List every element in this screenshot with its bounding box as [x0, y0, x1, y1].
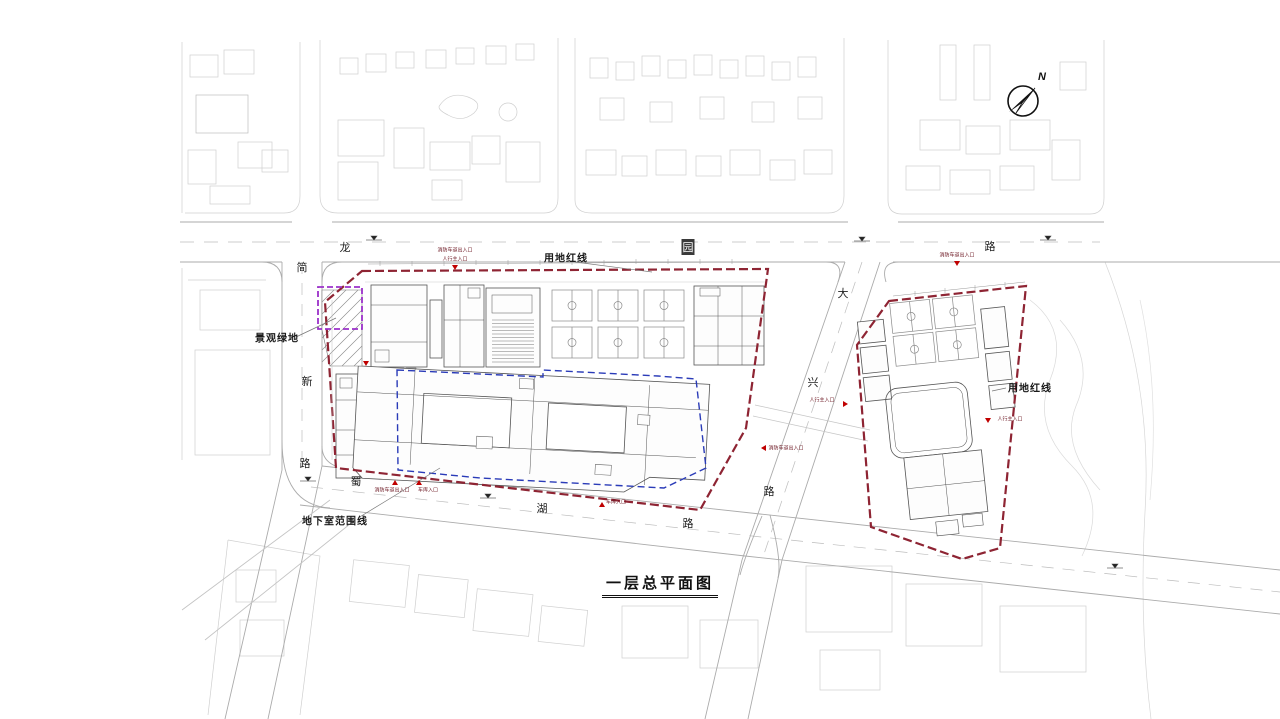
page-title: 一层总平面图 [602, 572, 718, 598]
label-garage-south2: 车库入口 [418, 487, 438, 494]
label-site-red-line-left: 用地红线 [544, 250, 588, 265]
label-site-red-line-right: 用地红线 [1008, 380, 1052, 395]
road-south-char-1: 蜀 [351, 473, 362, 489]
road-south-char-2: 湖 [537, 500, 548, 516]
road-west-char-2: 新 [302, 373, 313, 389]
label-fire-access-east: 消防车道出入口 [768, 445, 803, 452]
road-west-char-3: 路 [300, 455, 311, 471]
landscape-green-hatch [322, 290, 362, 366]
north-compass-icon [1008, 86, 1038, 116]
left-parcel-buildings [336, 282, 765, 496]
label-fire-access-top: 消防车道出入口 [437, 247, 472, 254]
site-plan-drawing [0, 0, 1280, 719]
north-label: N [1038, 71, 1046, 83]
label-basement-extent: 地下室范围线 [302, 513, 368, 528]
road-top-char-3: 路 [985, 238, 996, 254]
road-east-char-3: 路 [764, 483, 775, 499]
label-pedestrian-east: 人行主入口 [809, 397, 834, 404]
label-pedestrian-top: 人行主入口 [442, 256, 467, 263]
label-fire-access-topright: 消防车道出入口 [939, 252, 974, 259]
label-pedestrian-right-parcel: 人行主入口 [997, 416, 1022, 423]
road-top-char-2: 园 [682, 239, 695, 255]
label-landscape-green: 景观绿地 [255, 330, 299, 345]
label-fire-access-south: 消防车道出入口 [374, 487, 409, 494]
site-plan-page: 用地红线 用地红线 景观绿地 地下室范围线 龙 园 路 简 新 路 蜀 湖 路 … [0, 0, 1280, 719]
label-garage-south: 车库入口 [606, 499, 626, 506]
road-top-char-1: 龙 [340, 239, 351, 255]
road-east-char-2: 兴 [808, 374, 819, 390]
road-south-char-3: 路 [683, 515, 694, 531]
road-east-char-1: 大 [838, 285, 849, 301]
road-west-char-1: 简 [297, 259, 308, 275]
